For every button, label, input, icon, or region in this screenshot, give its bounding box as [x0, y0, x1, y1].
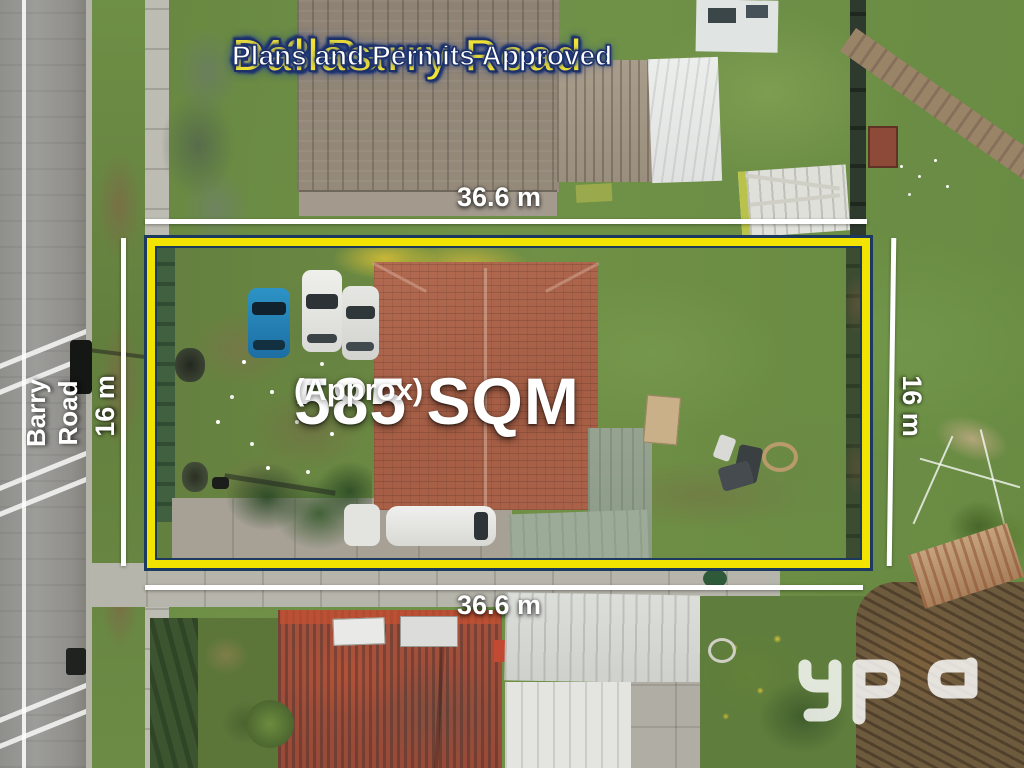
dirt-patch [96, 150, 142, 260]
pole [66, 648, 86, 675]
listing-subtitle: Plans and Permits Approved [232, 40, 612, 72]
skylight [333, 617, 386, 646]
garden-ring [708, 638, 736, 663]
red-structure [868, 126, 898, 168]
dimension-label-right: 16 m [896, 346, 928, 466]
aerial-photo: 443 Barry Road Dallas Plans and Permits … [0, 0, 1024, 768]
dimension-line-left [121, 238, 126, 566]
window [746, 5, 768, 18]
green-panel [576, 183, 613, 203]
land-area-qualifier: (Approx) [294, 372, 423, 408]
white-shed [648, 57, 722, 183]
neighbour-roof-red [278, 610, 502, 768]
metal-roof-building [505, 682, 631, 768]
ypa-logo: ypa [793, 652, 998, 732]
dimension-label-left: 16 m [89, 346, 121, 466]
litter [900, 165, 903, 168]
dimension-label-bottom: 36.6 m [437, 590, 561, 621]
hedge [150, 618, 198, 768]
dimension-line-top [145, 219, 867, 224]
window [708, 8, 736, 23]
dimension-label-top: 36.6 m [437, 182, 561, 213]
ypa-logo-glyphs [793, 652, 998, 732]
bush [246, 700, 294, 748]
road-name-label: Barry Road [20, 353, 52, 473]
